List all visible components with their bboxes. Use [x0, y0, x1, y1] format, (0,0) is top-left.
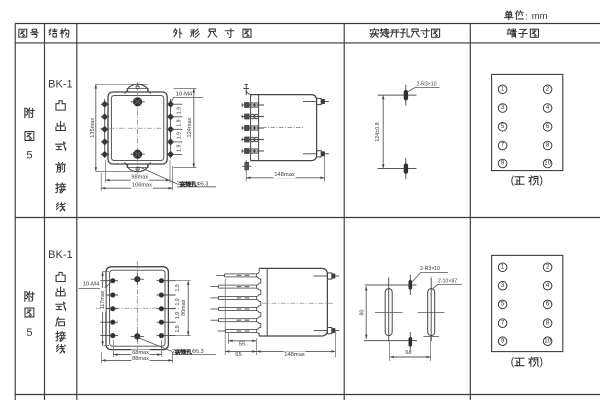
svg-text:148max: 148max — [284, 352, 305, 358]
svg-text:2: 2 — [546, 265, 550, 271]
svg-text:80max: 80max — [181, 299, 187, 315]
svg-text:2: 2 — [546, 87, 550, 93]
svg-text:2-10×87: 2-10×87 — [438, 278, 457, 284]
svg-text:1: 1 — [501, 87, 505, 93]
svg-text:BK-1: BK-1 — [48, 79, 72, 91]
svg-text:2-R3×10: 2-R3×10 — [420, 266, 440, 272]
svg-text:3: 3 — [501, 283, 505, 289]
svg-text:124max: 124max — [187, 117, 193, 137]
svg-text:): ) — [539, 356, 543, 368]
svg-text:117max: 117max — [100, 290, 106, 309]
svg-text:2: 2 — [172, 349, 175, 355]
svg-text:3: 3 — [501, 105, 505, 111]
svg-text:148max: 148max — [274, 172, 295, 178]
svg-text:1.9: 1.9 — [176, 107, 182, 114]
svg-text:(: ( — [511, 356, 515, 368]
svg-text:65: 65 — [235, 352, 241, 358]
svg-text:1: 1 — [501, 265, 505, 271]
svg-text:10-M4: 10-M4 — [83, 281, 100, 287]
svg-text:1.9: 1.9 — [176, 144, 182, 151]
svg-text:5: 5 — [501, 302, 505, 308]
svg-text:7: 7 — [501, 143, 505, 149]
svg-text:4: 4 — [546, 105, 550, 111]
svg-text:2: 2 — [177, 181, 180, 187]
svg-text:5: 5 — [501, 124, 505, 130]
svg-text::: : — [525, 10, 528, 21]
svg-text:2-R3×10: 2-R3×10 — [416, 82, 436, 88]
svg-text:8: 8 — [546, 320, 550, 326]
svg-text:55: 55 — [239, 342, 245, 348]
svg-text:135max: 135max — [90, 118, 96, 138]
svg-text:6: 6 — [546, 302, 550, 308]
svg-text:10: 10 — [544, 338, 551, 344]
svg-text:1.9: 1.9 — [176, 132, 182, 139]
svg-text:): ) — [539, 175, 543, 187]
svg-text:5: 5 — [26, 327, 32, 339]
svg-text:(: ( — [511, 175, 515, 187]
svg-text:mm: mm — [532, 10, 548, 21]
svg-text:6: 6 — [546, 124, 550, 130]
svg-text:9: 9 — [501, 161, 505, 167]
svg-text:98max: 98max — [131, 175, 148, 181]
svg-text:BK-1: BK-1 — [48, 249, 72, 261]
svg-text:1.9: 1.9 — [176, 119, 182, 126]
svg-text:80: 80 — [360, 310, 366, 316]
svg-text:8: 8 — [546, 143, 550, 149]
svg-text:10-M4: 10-M4 — [176, 92, 193, 98]
svg-text:10: 10 — [544, 161, 551, 167]
svg-text:1.9: 1.9 — [175, 325, 181, 332]
svg-text:68: 68 — [405, 350, 411, 356]
svg-text:9: 9 — [501, 338, 505, 344]
svg-text:4: 4 — [546, 283, 550, 289]
svg-text:Φ5.3: Φ5.3 — [192, 349, 204, 355]
svg-text:5: 5 — [26, 150, 32, 162]
svg-text:124±0.8: 124±0.8 — [375, 122, 381, 141]
svg-text:1.9: 1.9 — [175, 284, 181, 291]
svg-text:106max: 106max — [132, 182, 152, 188]
svg-text:88max: 88max — [132, 356, 149, 362]
svg-text:Φ5.3: Φ5.3 — [197, 181, 209, 187]
svg-text:7: 7 — [501, 320, 505, 326]
